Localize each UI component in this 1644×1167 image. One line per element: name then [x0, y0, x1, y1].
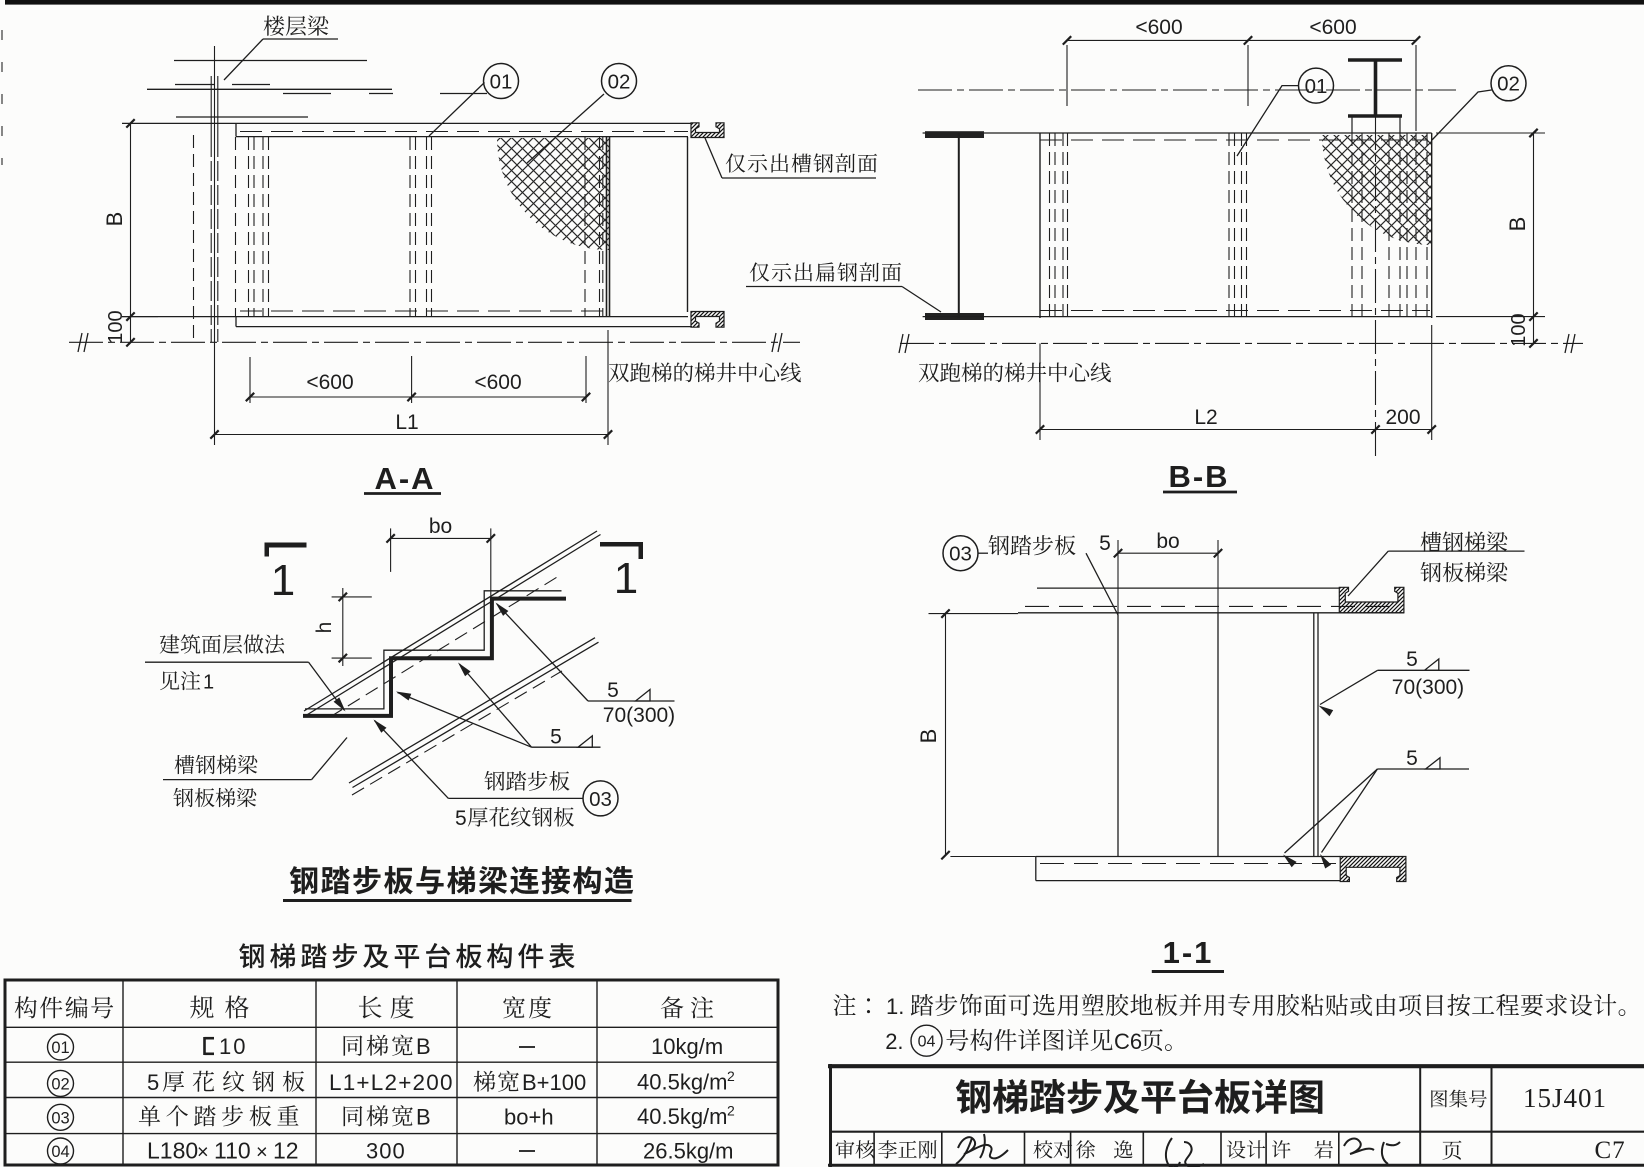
svg-text:5: 5: [607, 679, 619, 702]
svg-text:bo+h: bo+h: [504, 1105, 554, 1130]
svg-text:5: 5: [1406, 747, 1418, 770]
svg-text:<600: <600: [474, 371, 521, 394]
svg-text:5: 5: [550, 726, 562, 749]
svg-text:01: 01: [1305, 75, 1328, 98]
svg-text:03: 03: [589, 788, 612, 811]
svg-text:bo: bo: [429, 515, 452, 538]
svg-text:1: 1: [271, 556, 295, 605]
svg-text:70(300): 70(300): [1392, 676, 1464, 699]
svg-text:B-B: B-B: [1168, 459, 1229, 494]
svg-text:<600: <600: [1309, 16, 1356, 39]
svg-text:5: 5: [1099, 532, 1111, 555]
svg-text:04: 04: [918, 1034, 936, 1051]
svg-text:10: 10: [219, 1034, 247, 1059]
svg-text:01: 01: [51, 1039, 69, 1057]
svg-text:1: 1: [614, 554, 638, 603]
svg-text:70(300): 70(300): [603, 704, 675, 727]
svg-text:h: h: [313, 622, 336, 634]
svg-text:B: B: [416, 1105, 431, 1130]
svg-text:B: B: [102, 212, 127, 227]
svg-text:03: 03: [51, 1109, 69, 1127]
svg-text:1.: 1.: [886, 994, 904, 1019]
svg-text:L2: L2: [1194, 406, 1217, 429]
svg-text:A-A: A-A: [374, 461, 435, 496]
svg-text:bo: bo: [1156, 530, 1179, 553]
svg-text:01: 01: [490, 70, 513, 93]
svg-text:<600: <600: [1135, 16, 1182, 39]
svg-text:2.: 2.: [885, 1029, 903, 1054]
svg-text:02: 02: [51, 1075, 69, 1093]
svg-text:5: 5: [1406, 648, 1418, 671]
svg-text:B: B: [916, 729, 941, 744]
svg-text:1-1: 1-1: [1163, 935, 1214, 970]
svg-text:200: 200: [1385, 406, 1420, 429]
svg-text:B: B: [416, 1034, 431, 1059]
svg-text:C7: C7: [1595, 1137, 1626, 1164]
svg-text:×: ×: [256, 1142, 268, 1164]
svg-text:L1+L2+200: L1+L2+200: [329, 1070, 454, 1095]
svg-text:100: 100: [105, 310, 127, 343]
svg-text:B+100: B+100: [522, 1070, 586, 1095]
svg-text:04: 04: [51, 1143, 69, 1161]
svg-text:L1: L1: [395, 411, 418, 434]
svg-text:L180: L180: [147, 1138, 198, 1164]
svg-text:12: 12: [273, 1138, 299, 1164]
svg-text:03: 03: [949, 543, 972, 566]
svg-text:10kg/m: 10kg/m: [651, 1034, 723, 1059]
svg-text:5: 5: [455, 807, 467, 830]
svg-text:1: 1: [203, 672, 214, 694]
svg-text:02: 02: [608, 70, 631, 93]
svg-text:15J401: 15J401: [1523, 1083, 1607, 1113]
svg-text:40.5kg/m: 40.5kg/m: [637, 1104, 728, 1129]
svg-text:5: 5: [147, 1070, 159, 1095]
svg-text:B: B: [1505, 217, 1530, 232]
svg-text:×: ×: [197, 1142, 209, 1164]
svg-text:300: 300: [366, 1139, 406, 1164]
svg-text:100: 100: [1508, 313, 1530, 346]
svg-text:2: 2: [727, 1103, 735, 1119]
svg-text:110: 110: [214, 1138, 251, 1164]
svg-text:<600: <600: [306, 371, 353, 394]
svg-text:40.5kg/m: 40.5kg/m: [637, 1070, 728, 1095]
svg-text:02: 02: [1497, 73, 1520, 96]
svg-text:C6: C6: [1114, 1029, 1142, 1054]
svg-text:2: 2: [727, 1068, 735, 1084]
svg-text:26.5kg/m: 26.5kg/m: [643, 1139, 734, 1164]
